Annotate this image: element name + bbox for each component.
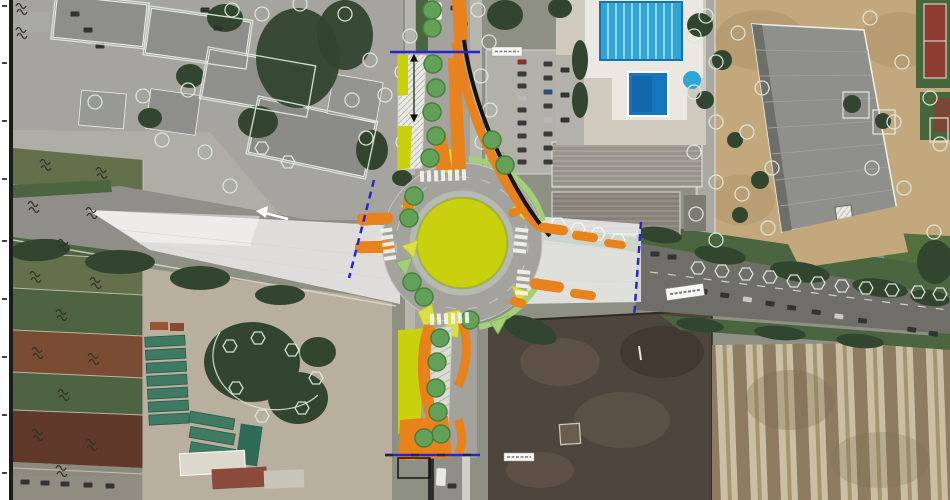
site-plan-map xyxy=(0,0,950,500)
lap-pool xyxy=(600,2,682,60)
street-label xyxy=(492,47,522,56)
yard-shed-red-roof xyxy=(212,467,268,490)
industrial-shed xyxy=(552,142,702,187)
roundabout-central-island xyxy=(417,198,507,288)
sheet-frame xyxy=(0,0,13,500)
sheet-border-line xyxy=(9,0,13,500)
striped-field xyxy=(712,342,950,500)
site-plan-canvas xyxy=(0,0,950,500)
street-label xyxy=(504,453,534,461)
sheet-margin xyxy=(0,0,9,500)
tennis-court xyxy=(916,0,950,140)
small-shed xyxy=(559,423,580,444)
